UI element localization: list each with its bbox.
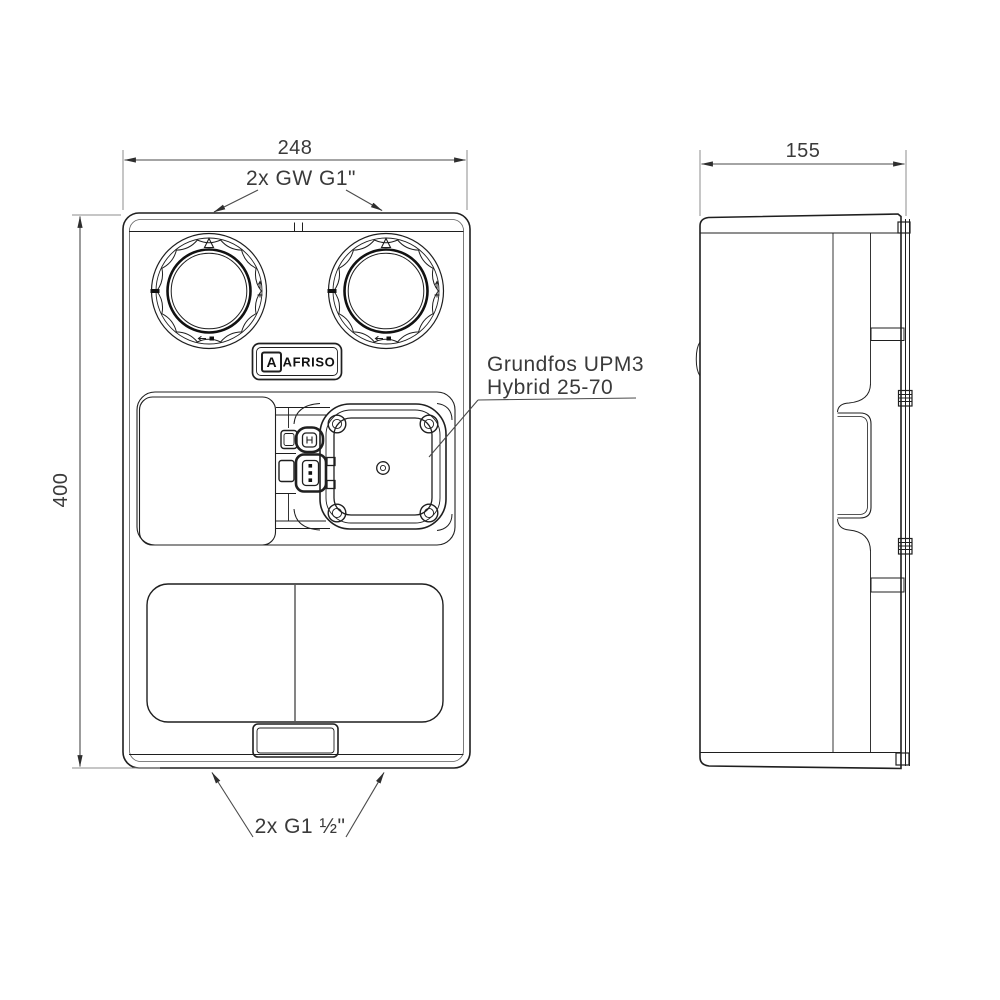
dimension-width-value: 248	[278, 137, 313, 159]
front-housing-outline	[123, 213, 470, 768]
front-view: A AFRISO	[123, 213, 470, 768]
callout-top-ports: 2x GW G1"	[214, 167, 382, 212]
dial-left-mark-icon	[151, 289, 160, 293]
drawing-canvas: A AFRISO	[0, 0, 1000, 1000]
dial-bottom-mark-icon	[210, 337, 215, 341]
side-view	[696, 214, 912, 769]
dimension-side-depth: 155	[700, 140, 906, 216]
top-ports-label: 2x GW G1"	[246, 167, 356, 190]
logo-letter: A	[266, 354, 276, 370]
dial-bottom-mark-icon	[387, 337, 392, 341]
dimension-height-value: 400	[50, 473, 72, 508]
callout-bottom-ports: 2x G1 ½"	[212, 773, 384, 839]
technical-drawing-page: A AFRISO	[0, 0, 1000, 1000]
bottom-ports-label: 2x G1 ½"	[255, 815, 346, 838]
logo-text: AFRISO	[283, 355, 336, 370]
pump-label-line2: Hybrid 25-70	[487, 376, 613, 399]
dial-left-mark-icon	[328, 289, 337, 293]
dimension-depth-value: 155	[786, 140, 821, 162]
pump-label-line1: Grundfos UPM3	[487, 353, 644, 376]
